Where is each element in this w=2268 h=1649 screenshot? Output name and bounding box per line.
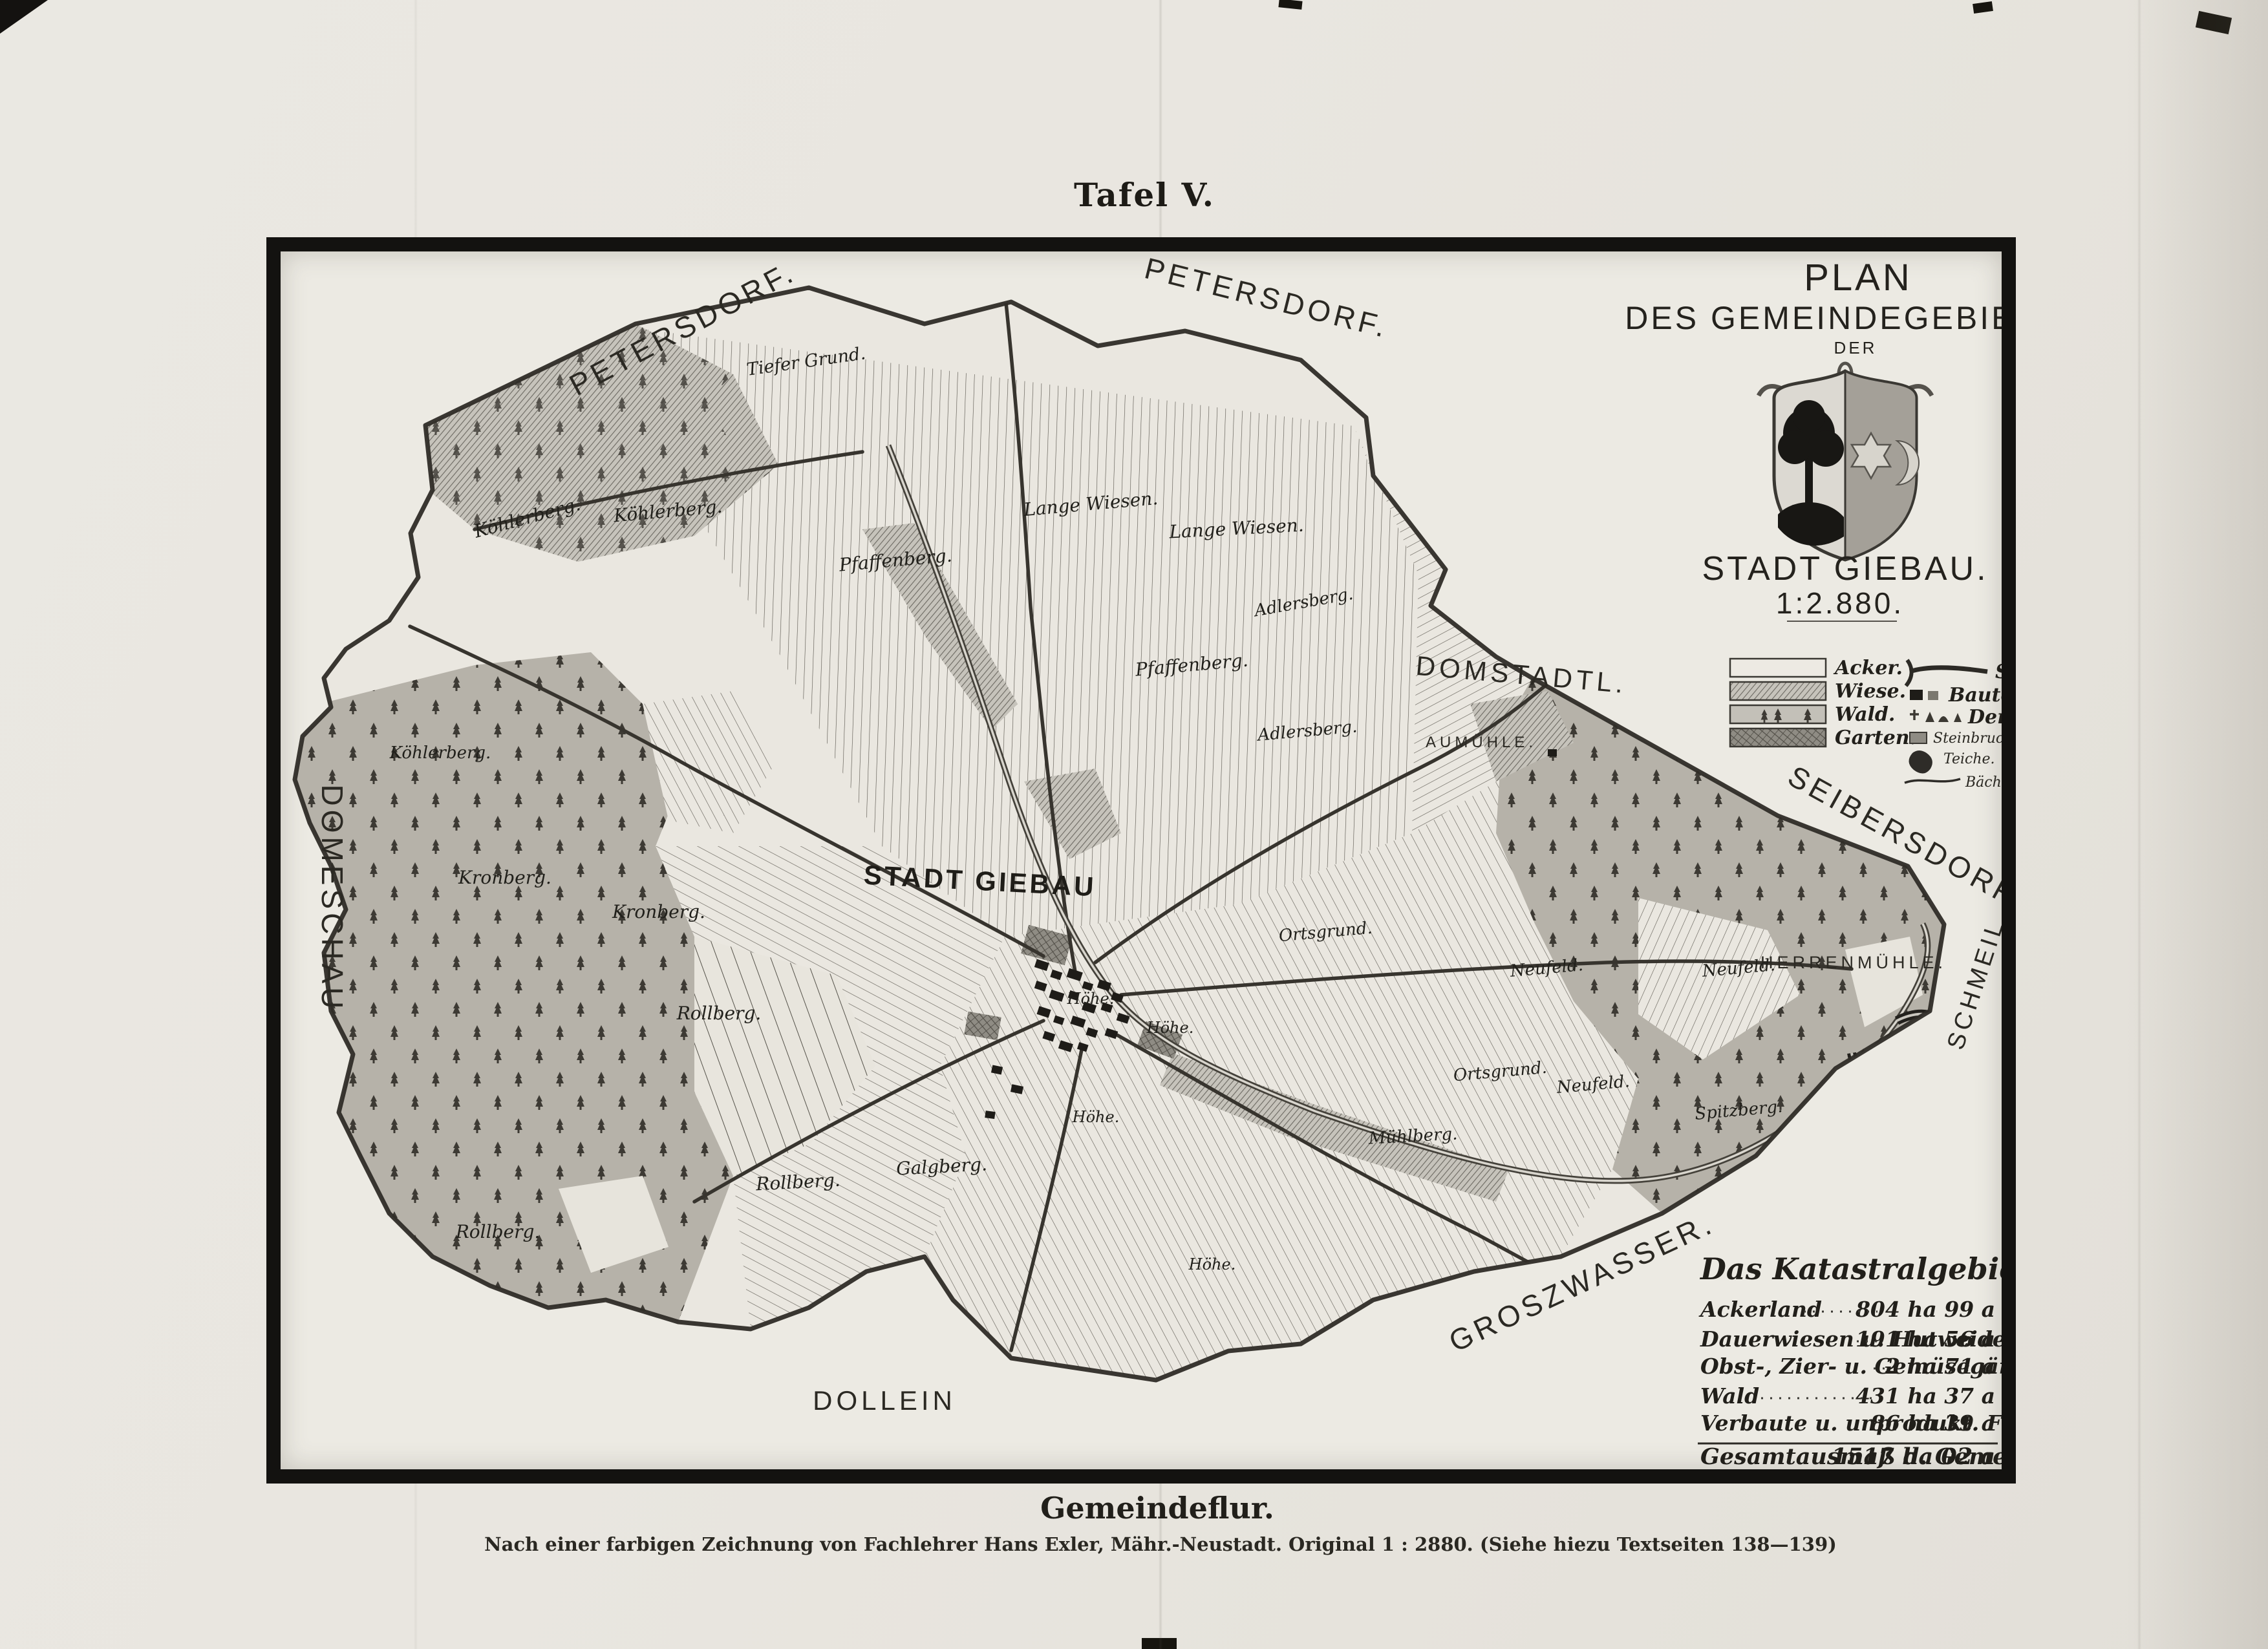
area-row-label: Wald (1700, 1383, 1759, 1409)
map-label: HERRENMÜHLE. (1760, 953, 1947, 972)
area-row-label: Ackerland (1698, 1297, 1822, 1322)
legend-label-wiese: Wiese. (1835, 680, 1906, 703)
map-label: Höhe. (1188, 1255, 1236, 1273)
title-scale: 1:2.880. (1776, 586, 1904, 620)
legend-label-strassen: Straßen. (1995, 661, 2002, 683)
legend-label-baeche: Bäche. (1965, 774, 2002, 791)
legend-swatch-acker (1730, 659, 1826, 677)
legend-label-garten: Garten. (1835, 727, 1916, 749)
legend-swatch-wald (1730, 705, 1826, 723)
legend-pond-icon (1909, 750, 1932, 774)
legend: Acker. Wiese. Wald. Garten. Straßen. Bau… (1730, 657, 2002, 791)
legend-label-teiche: Teiche. (1943, 751, 1995, 767)
area-table-title: Das Katastralgebiet von Giebau: (1699, 1251, 2002, 1286)
legend-monuments-icon (1910, 710, 1962, 722)
area-row-value: 191 ha 56 a (1856, 1326, 1995, 1352)
map-frame: PLAN DES GEMEINDEGEBIETES DER (266, 237, 2016, 1484)
scan-artifact-corner (0, 0, 48, 34)
legend-swatch-wiese (1730, 682, 1826, 700)
map-label: Rollberg. (754, 1169, 840, 1195)
area-row-value: 804 ha 99 a (1855, 1297, 1995, 1322)
title-line3: DER (1834, 338, 1878, 357)
legend-road-icon (1906, 660, 1987, 686)
coat-of-arms (1759, 363, 1932, 560)
scanned-map-page: Tafel V. (0, 0, 2268, 1649)
scan-artifact (1278, 0, 1302, 10)
area-row-value: 431 ha 37 a (1856, 1383, 1995, 1409)
scan-artifact (1973, 1, 1993, 14)
map-label: Höhe. (1146, 1019, 1194, 1037)
area-row-value: 86 ha 39 a (1870, 1410, 1995, 1436)
map-label: DOMESCHAU (316, 784, 349, 1012)
caption-credit-line: Nach einer farbigen Zeichnung von Fachle… (478, 1533, 1843, 1555)
map-label: SCHMEIL (1942, 915, 2002, 1054)
legend-label-acker: Acker. (1833, 657, 1903, 679)
map-label: Höhe. (1067, 990, 1115, 1008)
legend-buildings-icon (1910, 690, 1938, 700)
map-label: DOLLEIN (813, 1385, 956, 1416)
map-label: Höhe. (1072, 1108, 1120, 1126)
legend-label-denkmaeler: Denkmäler. (1967, 706, 2002, 729)
area-total-value: 1517 ha 02 a (1832, 1443, 1995, 1469)
legend-label-bauten: Bauten. (1948, 684, 2002, 707)
caption-title: Gemeindeflur. (895, 1491, 1419, 1526)
area-row-value: 2 ha 71 a (1885, 1354, 1995, 1379)
legend-label-steinbruch: Steinbruch. (1933, 730, 2002, 747)
map-label: Kronberg. (612, 901, 705, 922)
map-canvas: PLAN DES GEMEINDEGEBIETES DER (281, 251, 2002, 1469)
title-city: STADT GIEBAU. (1702, 550, 1988, 588)
paper-shading (2126, 0, 2268, 1649)
plate-label: Tafel V. (1009, 176, 1280, 214)
title-line2: DES GEMEINDEGEBIETES (1625, 300, 2002, 336)
map-label: Rollberg. (455, 1221, 540, 1242)
legend-label-wald: Wald. (1835, 703, 1895, 726)
map-label: AUMÜHLE. (1426, 734, 1537, 751)
legend-quarry-icon (1910, 732, 1927, 743)
area-table: Das Katastralgebiet von Giebau: Ackerlan… (1698, 1251, 2002, 1469)
map-label: Kronberg. (458, 867, 551, 888)
legend-swatch-garten (1730, 729, 1826, 747)
legend-stream-icon (1905, 779, 1960, 783)
title-block: PLAN DES GEMEINDEGEBIETES DER (1625, 257, 2002, 621)
map-label: Köhlerberg. (389, 743, 491, 763)
title-line1: PLAN (1804, 257, 1912, 299)
map-label: Rollberg. (676, 1003, 762, 1024)
